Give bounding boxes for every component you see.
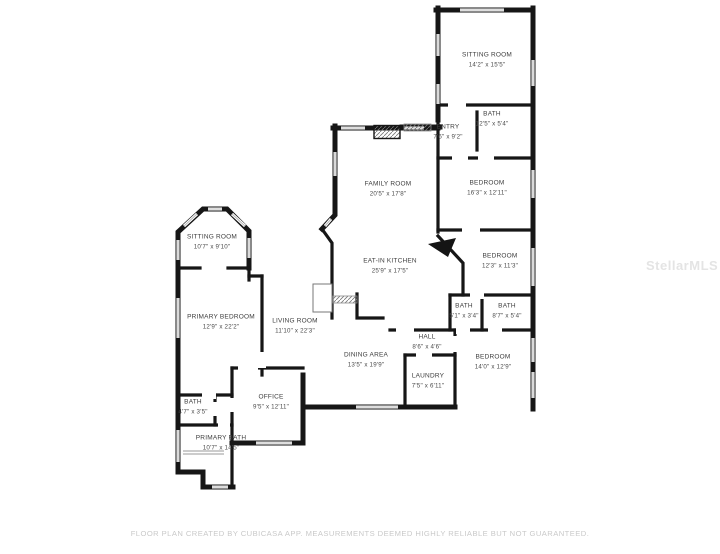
kitchen-counter-window-icon [333,296,357,303]
room-label-bath-small: BATH5'1" x 3'4" [449,301,478,320]
room-label-bedroom-163: BEDROOM16'3" x 12'11" [467,178,507,197]
fireplace-icon [374,126,400,139]
room-name: BATH [178,397,207,407]
floor-plan-page: SITTING ROOM14'2" x 15'5" BATH12'5" x 5'… [0,0,720,554]
room-name: PRIMARY BATH [196,433,246,443]
room-name: OFFICE [253,392,289,402]
floor-plan-drawing [0,0,720,554]
room-name: BATH [476,109,509,119]
room-name: SITTING ROOM [462,50,512,60]
room-name: HALL [412,332,441,342]
room-dims: 10'7" x 9'10" [187,242,237,251]
room-dims: 13'5" x 19'9" [344,360,388,369]
kitchen-counter-icon [313,284,332,312]
room-dims: 16'3" x 12'11" [467,188,507,197]
room-dims: 8'7" x 5'4" [492,311,521,320]
room-name: SITTING ROOM [187,232,237,242]
room-label-hall: HALL8'6" x 4'6" [412,332,441,351]
room-name: BEDROOM [475,352,512,362]
entry-window-icon [404,124,431,131]
room-name: FAMILY ROOM [365,179,412,189]
room-label-entry: ENTRY7'6" x 9'2" [433,122,462,141]
room-dims: 14'2" x 15'5" [462,60,512,69]
room-name: BATH [492,301,521,311]
room-label-dining-area: DINING AREA13'5" x 19'9" [344,350,388,369]
room-dims: 7'6" x 9'2" [433,132,462,141]
room-dims: 11'10" x 22'3" [272,326,318,335]
room-dims: 10'7" x 14'5" [196,443,246,452]
room-name: EAT-IN KITCHEN [363,256,417,266]
room-label-bath-upper: BATH12'5" x 5'4" [476,109,509,128]
room-dims: 12'3" x 11'3" [482,261,518,270]
room-label-sitting-room-left: SITTING ROOM10'7" x 9'10" [187,232,237,251]
room-name: ENTRY [433,122,462,132]
room-dims: 12'9" x 22'2" [187,322,255,331]
room-label-living-room: LIVING ROOM11'10" x 22'3" [272,316,318,335]
room-dims: 14'0" x 12'9" [475,362,512,371]
room-name: PRIMARY BEDROOM [187,312,255,322]
room-name: BEDROOM [467,178,507,188]
room-label-laundry: LAUNDRY7'5" x 6'11" [412,371,444,390]
room-label-eat-in-kitchen: EAT-IN KITCHEN25'9" x 17'5" [363,256,417,275]
room-label-primary-bedroom: PRIMARY BEDROOM12'9" x 22'2" [187,312,255,331]
room-label-office: OFFICE9'5" x 12'11" [253,392,289,411]
footer-disclaimer: FLOOR PLAN CREATED BY CUBICASA APP. MEAS… [0,529,720,538]
room-dims: 9'5" x 12'11" [253,402,289,411]
room-label-sitting-room-tr: SITTING ROOM14'2" x 15'5" [462,50,512,69]
room-dims: 25'9" x 17'5" [363,266,417,275]
room-dims: 4'7" x 3'5" [178,407,207,416]
room-name: LAUNDRY [412,371,444,381]
room-label-family-room: FAMILY ROOM20'5" x 17'8" [365,179,412,198]
watermark-stellar-mls: StellarMLS [646,258,718,273]
room-label-primary-bath: PRIMARY BATH10'7" x 14'5" [196,433,246,452]
room-label-bedroom-123: BEDROOM12'3" x 11'3" [482,251,518,270]
room-label-bath-87: BATH8'7" x 5'4" [492,301,521,320]
room-name: BEDROOM [482,251,518,261]
room-dims: 7'5" x 6'11" [412,381,444,390]
room-dims: 5'1" x 3'4" [449,311,478,320]
room-label-bedroom-140: BEDROOM14'0" x 12'9" [475,352,512,371]
room-label-bath-47: BATH4'7" x 3'5" [178,397,207,416]
room-name: DINING AREA [344,350,388,360]
room-name: BATH [449,301,478,311]
room-name: LIVING ROOM [272,316,318,326]
room-dims: 8'6" x 4'6" [412,342,441,351]
room-dims: 20'5" x 17'8" [365,189,412,198]
room-dims: 12'5" x 5'4" [476,119,509,128]
